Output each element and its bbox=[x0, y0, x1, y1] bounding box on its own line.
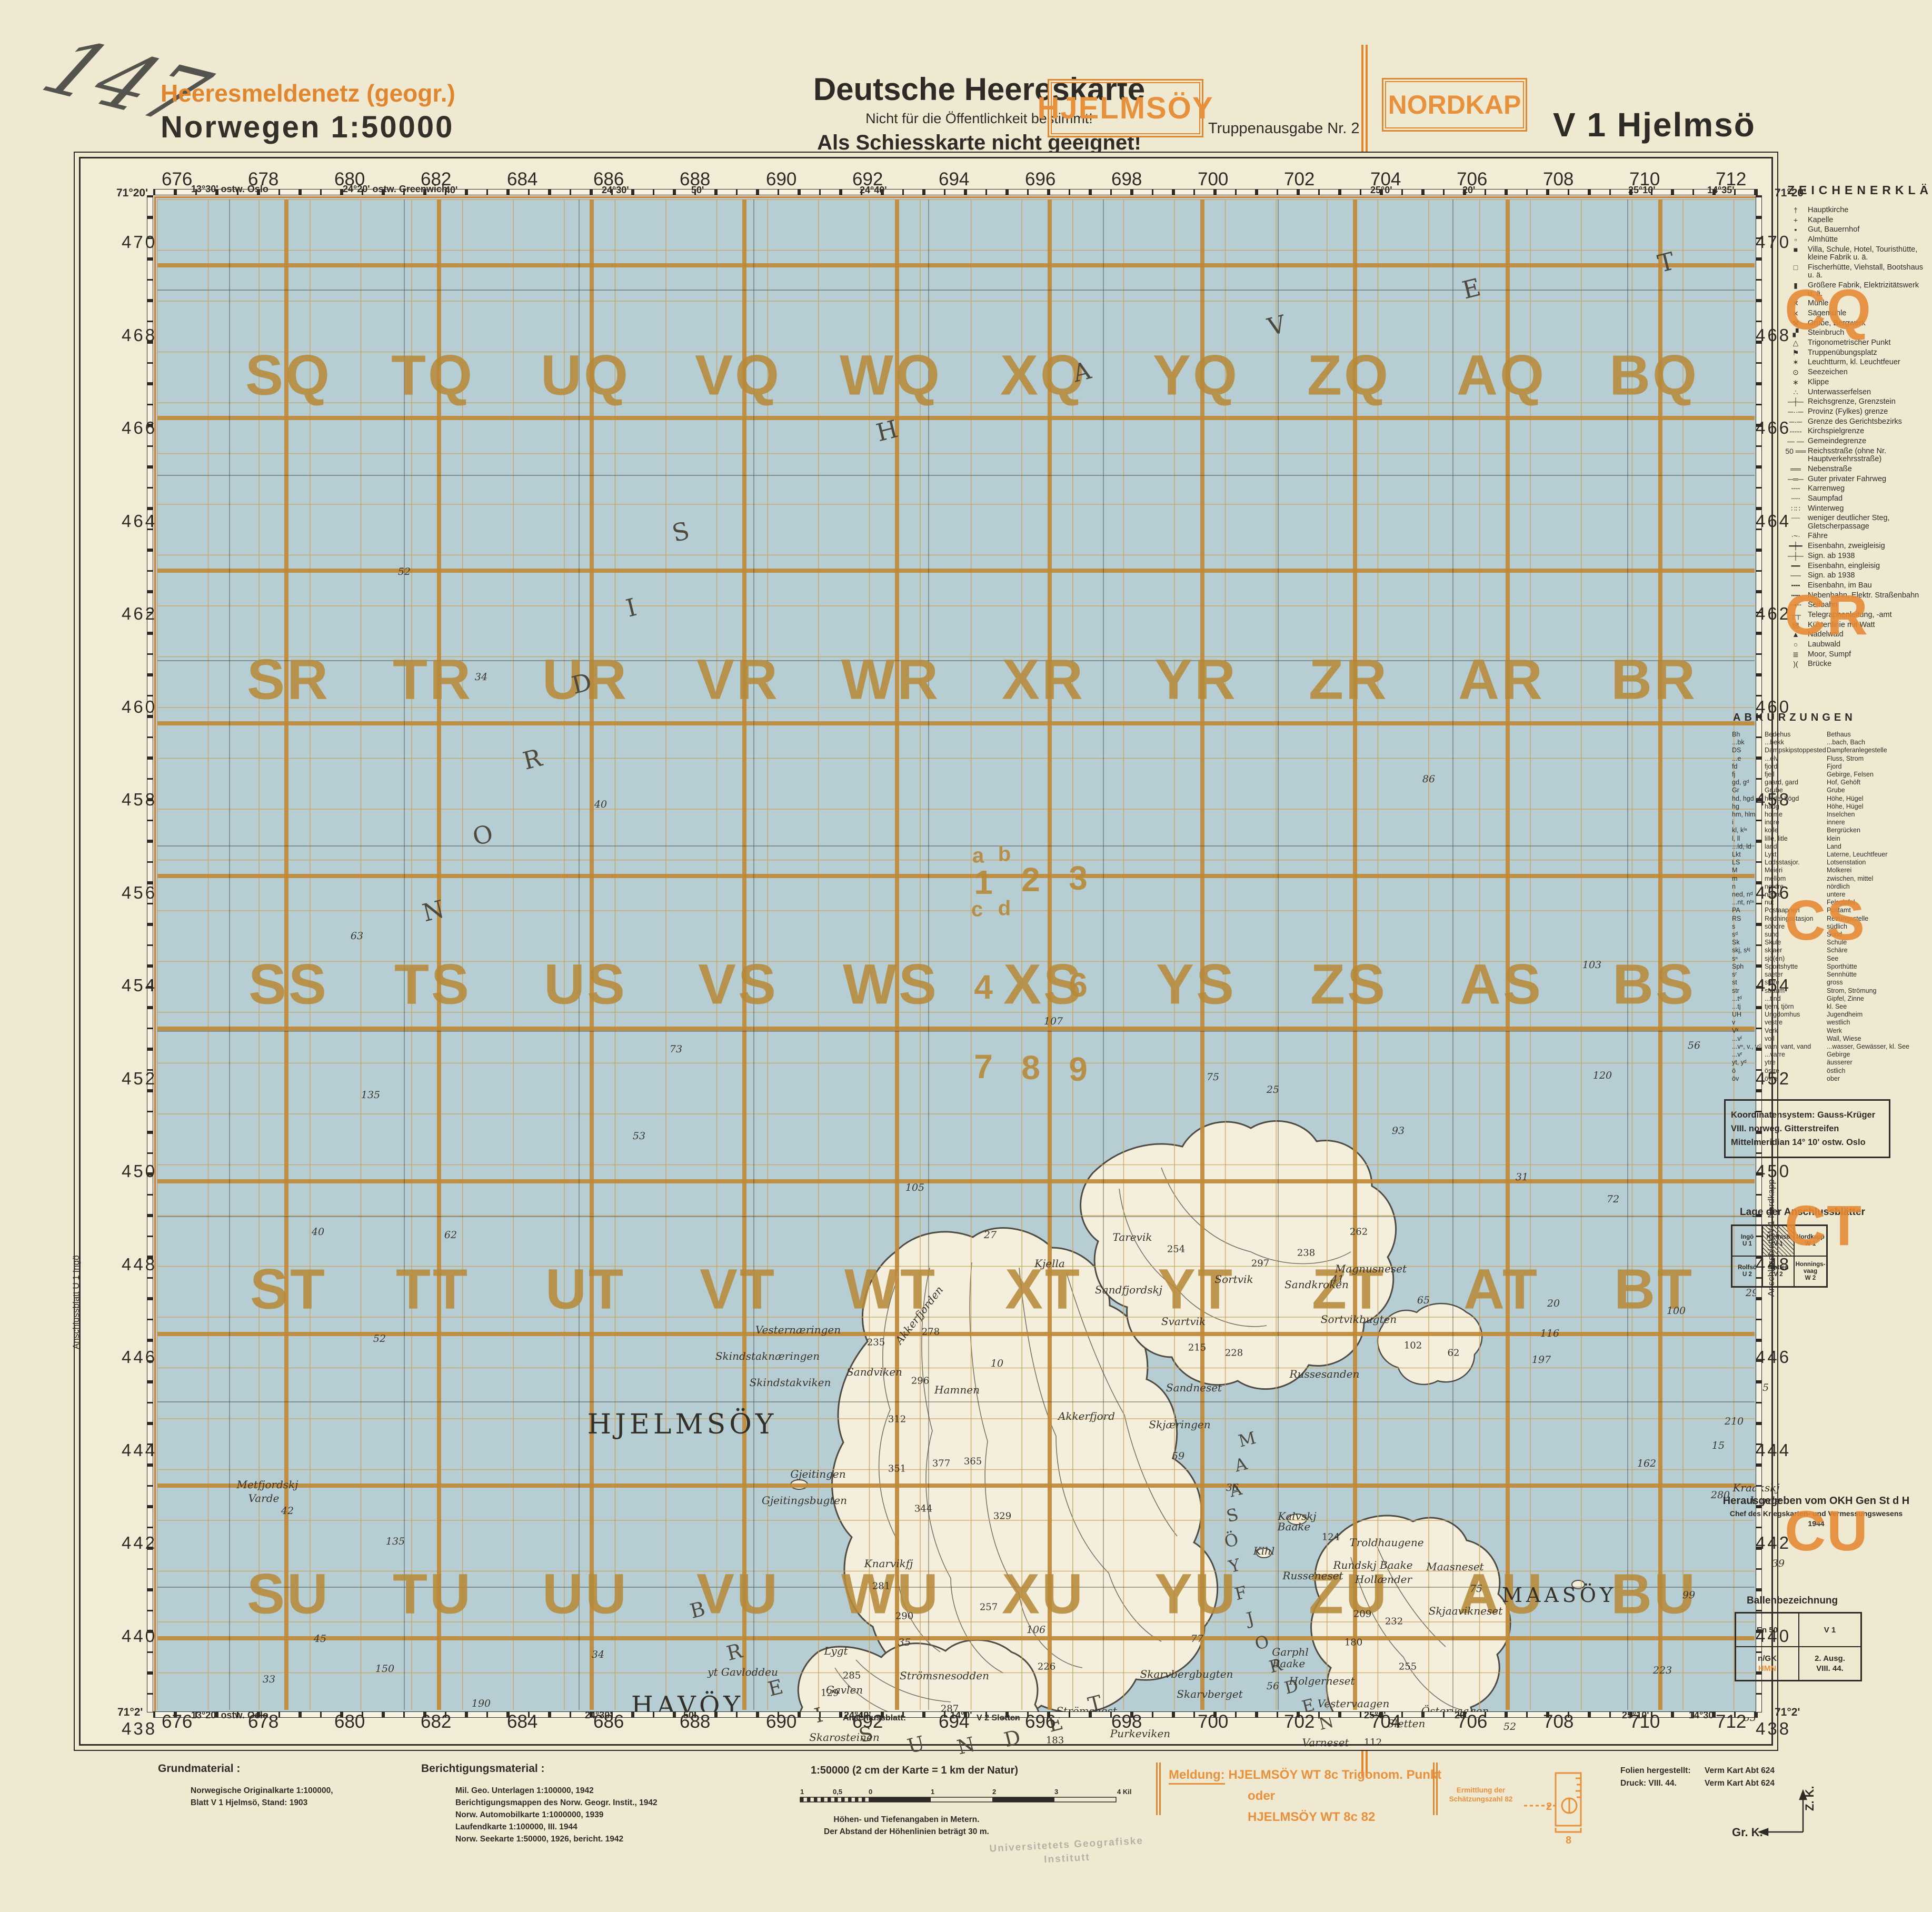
abbreviation-row: hm, hlmholmeInselchen bbox=[1732, 811, 1927, 819]
margin-edge-num: 680 bbox=[334, 1711, 365, 1732]
svg-text:0: 0 bbox=[869, 1788, 872, 1796]
margin-edge-num: 708 bbox=[1543, 169, 1574, 190]
adjoining-sheet-cell: Honnings- vaagW 2 bbox=[1794, 1256, 1827, 1287]
koord-line: Mittelmeridian 14° 10' ostw. Oslo bbox=[1731, 1136, 1884, 1149]
margin-edge-num: 684 bbox=[507, 169, 537, 190]
abbreviation-row: gd, gᵈgaard, gardHof, Gehöft bbox=[1732, 779, 1927, 786]
abbreviation-row: fdfjordFjord bbox=[1732, 763, 1927, 771]
header-left: Heeresmeldenetz (geogr.) Norwegen 1:5000… bbox=[161, 79, 455, 145]
pname-label: Skarosteinen bbox=[809, 1731, 879, 1744]
legend-item: -----Kirchspielgrenze bbox=[1784, 427, 1926, 436]
margin-zone-letter: CS bbox=[1785, 887, 1866, 953]
margin-zone-letter: CQ bbox=[1785, 276, 1872, 342]
correction-material-title: Berichtigungsmaterial : bbox=[421, 1762, 545, 1775]
legend-item: ≣Moor, Sumpf bbox=[1784, 651, 1926, 659]
legend-label: Provinz (Fylkes) grenze bbox=[1808, 408, 1888, 416]
legend-item: 50 ══Reichsstraße (ohne Nr. Hauptverkehr… bbox=[1784, 447, 1926, 464]
legend-item: ╌╌Karrenweg bbox=[1784, 485, 1926, 493]
legend-symbol-icon: ⊙ bbox=[1784, 369, 1808, 376]
legend-item: ┄┄Saumpfad bbox=[1784, 495, 1926, 503]
legend-label: Guter privater Fahrweg bbox=[1808, 475, 1886, 484]
abbreviation-row: vvestrewestlich bbox=[1732, 1019, 1927, 1027]
abbreviation-row: LSLodsstasjor.Lotsenstation bbox=[1732, 859, 1927, 867]
bale-cell: V 1 bbox=[1799, 1613, 1861, 1647]
diagram-bottom-num: 8 bbox=[1566, 1835, 1571, 1846]
legend-symbol-icon: ✶ bbox=[1784, 358, 1808, 366]
abbreviation-row: yt, yᵈytreäusserer bbox=[1732, 1059, 1927, 1067]
margin-rotl: Anschlussblatt U 1 Ingö bbox=[71, 1255, 82, 1349]
map-canvas[interactable]: SQTQUQVQWQXQYQZQAQBQSRTRURVRWRXRYRZRARBR… bbox=[154, 196, 1758, 1713]
margin-edge-num-l: 462 bbox=[122, 604, 157, 624]
abbreviation-row: övövreober bbox=[1732, 1075, 1927, 1083]
margin-edge-num-l: 452 bbox=[122, 1069, 157, 1089]
bale-cell: 2. Ausg.VIII. 44. bbox=[1799, 1647, 1861, 1680]
margin-edge-num-l: 446 bbox=[122, 1347, 157, 1367]
margin-latlab: 71°2' bbox=[117, 1706, 143, 1719]
pname-label: Varneset bbox=[1302, 1736, 1349, 1749]
grid-north-diagram: Gr. K. Z. K. bbox=[1727, 1779, 1843, 1874]
abbreviation-row: UHUngdomhusJugendheim bbox=[1732, 1011, 1927, 1019]
margin-edge-num-l: 438 bbox=[1756, 1719, 1791, 1739]
library-stamp: Universitetets Geografiske Institutt bbox=[989, 1834, 1144, 1869]
margin-edge-num: 696 bbox=[1025, 1711, 1055, 1732]
abbreviation-row: LktLyktLaterne, Leuchtfeuer bbox=[1732, 851, 1927, 859]
legend-item: ■Villa, Schule, Hotel, Touristhütte, kle… bbox=[1784, 246, 1926, 262]
estimation-diagram: 2 8 bbox=[1519, 1769, 1592, 1848]
meldung-bar-left bbox=[1156, 1762, 1161, 1815]
estimation-line: Schätzungszahl 82 bbox=[1447, 1795, 1515, 1804]
margin-lonlab: V 2 Slotten bbox=[977, 1714, 1020, 1723]
abbreviation-row: sⁿsjö(en)See bbox=[1732, 955, 1927, 963]
margin-edge-num-l: 448 bbox=[122, 1254, 157, 1274]
legend-item: )(Brücke bbox=[1784, 660, 1926, 669]
legend-item: ⚑Truppenübungsplatz bbox=[1784, 349, 1926, 357]
margin-edge-num: 700 bbox=[1198, 169, 1228, 190]
margin-lonlab: 24°30' bbox=[585, 1710, 612, 1721]
legend-item: ·~·Fähre bbox=[1784, 532, 1926, 541]
abbreviation-row: sʳsaeterSennhütte bbox=[1732, 971, 1927, 979]
margin-lonlab: 14°30' bbox=[1689, 1710, 1716, 1721]
legend-item: ━━Eisenbahn, eingleisig bbox=[1784, 562, 1926, 571]
stamp-hjelmsoy: HJELMSÖY bbox=[1048, 79, 1203, 137]
abbreviation-row: ...ld, ldlandLand bbox=[1732, 843, 1927, 851]
edition-label: Truppenausgabe Nr. 2 bbox=[1208, 120, 1360, 137]
margin-edge-num: 702 bbox=[1284, 169, 1314, 190]
margin-lonlab: 25°0' bbox=[1370, 185, 1392, 196]
heights-note: Höhen- und Tiefenangaben in Metern. Der … bbox=[824, 1814, 989, 1838]
adjoining-sheet-cell: SlottenV 2 bbox=[1762, 1256, 1794, 1287]
legend-symbol-icon: ─·─ bbox=[1784, 418, 1808, 426]
legend-item: ✶Leuchtturm, kl. Leuchtfeuer bbox=[1784, 358, 1926, 367]
hgt-label: 183 bbox=[1046, 1735, 1064, 1746]
meldung-line1: HJELMSÖY WT 8c Trigonom. Punkt bbox=[1228, 1768, 1441, 1782]
sheet-name: V 1 Hjelmsö bbox=[1553, 105, 1756, 144]
abbreviation-row: ...vˡvollWall, Wiese bbox=[1732, 1035, 1927, 1043]
legend-label: Villa, Schule, Hotel, Touristhütte, klei… bbox=[1808, 246, 1926, 262]
margin-edge-num: 690 bbox=[766, 169, 796, 190]
margin-edge-num: 690 bbox=[766, 1711, 796, 1732]
legend-label: Gemeindegrenze bbox=[1808, 437, 1866, 446]
estimation-note: Ermittlung der Schätzungszahl 82 bbox=[1447, 1786, 1515, 1804]
margin-edge-num-l: 442 bbox=[122, 1533, 157, 1553]
heights-line: Höhen- und Tiefenangaben in Metern. bbox=[824, 1814, 989, 1826]
abbreviation-row: ...bk...bekk...bach, Bach bbox=[1732, 739, 1927, 746]
legend-item: †Hauptkirche bbox=[1784, 206, 1926, 215]
margin-edge-num-l: 444 bbox=[122, 1440, 157, 1460]
legend-label: Klippe bbox=[1808, 379, 1829, 387]
legend-item: ∗Klippe bbox=[1784, 379, 1926, 387]
margin-lonlab: 20' bbox=[1455, 1710, 1467, 1721]
legend-label: Saumpfad bbox=[1808, 495, 1843, 503]
legend-symbol-icon: ▪ bbox=[1784, 226, 1808, 234]
margin-edge-num: 702 bbox=[1284, 1711, 1314, 1732]
abbreviation-row: hd, hgdhöide, högdHöhe, Hügel bbox=[1732, 795, 1927, 803]
abbreviation-row: DSDampskipstoppestedDampferanlegestelle bbox=[1732, 746, 1927, 754]
abbreviation-row: ...e...elvFluss, Strom bbox=[1732, 755, 1927, 763]
legend-symbol-icon: ╌╌ bbox=[1784, 485, 1808, 493]
margin-edge-num-l: 470 bbox=[122, 232, 157, 252]
coordinate-system-box: Koordinatensystem: Gauss-Krüger VIII. no… bbox=[1724, 1099, 1890, 1158]
bale-cell: En 50 bbox=[1736, 1613, 1799, 1647]
legend-item: ─·─Grenze des Gerichtsbezirks bbox=[1784, 418, 1926, 426]
legend-item: ▫Almhütte bbox=[1784, 236, 1926, 244]
legend-symbol-icon: ══ bbox=[1784, 465, 1808, 473]
legend-label: Kirchspielgrenze bbox=[1808, 427, 1864, 436]
legend-symbol-icon: ┈┈ bbox=[1784, 514, 1808, 522]
margin-edge-num-l: 440 bbox=[122, 1626, 157, 1646]
margin-edge-num-l: 464 bbox=[122, 511, 157, 531]
abbreviation-row: GrGrubeGrube bbox=[1732, 786, 1927, 794]
legend-item: ──Sign. ab 1938 bbox=[1784, 572, 1926, 580]
legend-item: ─┼─Reichsgrenze, Grenzstein bbox=[1784, 398, 1926, 406]
svg-text:2: 2 bbox=[992, 1788, 996, 1796]
legend-symbol-icon: ∴ bbox=[1784, 389, 1808, 396]
adjoining-sheet-cell: IngöU 1 bbox=[1732, 1226, 1762, 1256]
legend-item: ┈┈weniger deutlicher Steg, Gletscherpass… bbox=[1784, 514, 1926, 531]
legend-label: Gut, Bauernhof bbox=[1808, 226, 1859, 234]
koord-line: VIII. norweg. Gitterstreifen bbox=[1731, 1122, 1884, 1136]
legend-symbol-icon: ·~· bbox=[1784, 532, 1808, 540]
legend-item: ▪Gut, Bauernhof bbox=[1784, 226, 1926, 234]
legend-label: Truppenübungsplatz bbox=[1808, 349, 1877, 357]
legend-symbol-icon: ≣ bbox=[1784, 651, 1808, 659]
koord-line: Koordinatensystem: Gauss-Krüger bbox=[1731, 1108, 1884, 1122]
abbreviation-row: ...tᵈ...tindGipfel, Zinne bbox=[1732, 995, 1927, 1003]
margin-lonlab: 25°10' bbox=[1622, 1710, 1649, 1721]
legend-item: ─┼─Sign. ab 1938 bbox=[1784, 552, 1926, 561]
margin-lonlab: 40' bbox=[445, 185, 457, 196]
legend-label: Nebenstraße bbox=[1808, 465, 1852, 474]
abbreviation-row: ...tjtjern, tjörnkl. See bbox=[1732, 1003, 1927, 1011]
abbreviation-row: ...vʳ...varreGebirge bbox=[1732, 1051, 1927, 1059]
legend-symbol-icon: 50 ══ bbox=[1784, 447, 1808, 455]
map-frame: SQTQUQVQWQXQYQZQAQBQSRTRURVRWRXRYRZRARBR… bbox=[79, 157, 1773, 1746]
svg-text:1: 1 bbox=[931, 1788, 934, 1796]
scale-statement: 1:50000 (2 cm der Karte = 1 km der Natur… bbox=[811, 1765, 1018, 1777]
margin-lonlab: 20' bbox=[1462, 185, 1475, 196]
abbreviation-row: MMeieriMolkerei bbox=[1732, 867, 1927, 874]
legend-symbol-icon: ─═─ bbox=[1784, 475, 1808, 483]
island-ne-small bbox=[1378, 1303, 1482, 1385]
abbreviation-row: ööstreöstlich bbox=[1732, 1067, 1927, 1075]
base-material-title: Grundmaterial : bbox=[158, 1762, 240, 1775]
abbreviation-row: VᵏVerkWerk bbox=[1732, 1027, 1927, 1035]
map-sheet: { "page": { "handwritten_number": "147" … bbox=[0, 0, 1932, 1871]
seachar seachar2-label: N bbox=[955, 1732, 979, 1759]
legend-symbol-icon: † bbox=[1784, 206, 1808, 214]
margin-lonlab: Anschlussblatt: bbox=[843, 1714, 906, 1723]
legend-item: ━┿━Eisenbahn, zweigleisig bbox=[1784, 542, 1926, 551]
abbreviation-row: kl, kˡⁿkolleBergrücken bbox=[1732, 826, 1927, 834]
abbreviation-row: ststoregross bbox=[1732, 979, 1927, 987]
meldung-label: Meldung: bbox=[1169, 1768, 1225, 1785]
margin-lonlab: 24°20' ostw. Greenwich bbox=[343, 184, 447, 195]
margin-lonlab: 13°20' ostw. Oslo bbox=[191, 1710, 268, 1721]
abbreviation-row: SphSportshytteSporthütte bbox=[1732, 963, 1927, 971]
abbreviation-row: strstraumStrom, Strömung bbox=[1732, 987, 1927, 995]
stamp-nordkap: NORDKAP bbox=[1382, 78, 1527, 132]
abbreviation-row: mmellomzwischen, mittel bbox=[1732, 875, 1927, 883]
legend-label: Winterweg bbox=[1808, 505, 1844, 513]
margin-zone-letter: CU bbox=[1785, 1498, 1869, 1564]
legend-symbol-icon: ─┼─ bbox=[1784, 398, 1808, 406]
seachar seachar2-label: D bbox=[1002, 1725, 1024, 1752]
margin-lonlab: 25°10' bbox=[1628, 185, 1656, 196]
legend-item: ─··─Provinz (Fylkes) grenze bbox=[1784, 408, 1926, 416]
legend-symbol-icon: ── bbox=[1784, 572, 1808, 580]
margin-edge-num: 676 bbox=[162, 169, 192, 190]
abbreviation-row: hghaugHöhe, Hügel bbox=[1732, 803, 1927, 811]
legend-label: Kapelle bbox=[1808, 216, 1833, 225]
margin-edge-num-l: 466 bbox=[122, 418, 157, 438]
margin-edge-num: 682 bbox=[421, 1711, 451, 1732]
abbreviation-row: ...vⁿ, v., vᵈvatn, vant, vand...wasser, … bbox=[1732, 1043, 1927, 1051]
legend-symbol-icon: □ bbox=[1784, 264, 1808, 272]
margin-edge-num: 698 bbox=[1111, 1711, 1142, 1732]
abbreviation-row: BhBedehusBethaus bbox=[1732, 731, 1927, 739]
legend-symbol-icon: ─┼─ bbox=[1784, 552, 1808, 560]
legend-item: ∷∷Winterweg bbox=[1784, 505, 1926, 513]
legend-label: Karrenweg bbox=[1808, 485, 1845, 493]
zk-label: Z. K. bbox=[1803, 1786, 1816, 1811]
legend-label: Reichsgrenze, Grenzstein bbox=[1808, 398, 1896, 406]
margin-edge-num-l: 450 bbox=[122, 1161, 157, 1181]
legend-label: Almhütte bbox=[1808, 236, 1838, 244]
legend-item: +Kapelle bbox=[1784, 216, 1926, 225]
margin-edge-num: 708 bbox=[1543, 1711, 1574, 1732]
margin-lonlab: 24°30' bbox=[602, 185, 629, 196]
legend-label: Grenze des Gerichtsbezirks bbox=[1808, 418, 1902, 426]
legend-symbol-icon: ■ bbox=[1784, 246, 1808, 254]
legend-label: Unterwasserfelsen bbox=[1808, 389, 1871, 397]
legend-symbol-icon: ━┿━ bbox=[1784, 542, 1808, 550]
legend-label: weniger deutlicher Steg, Gletscherpassag… bbox=[1808, 514, 1926, 531]
legend-label: Brücke bbox=[1808, 660, 1831, 669]
margin-edge-num-l: 438 bbox=[122, 1719, 157, 1739]
legend-title: ZEICHENERKLÄRUNG bbox=[1787, 183, 1932, 197]
abbreviation-row: iindreinnere bbox=[1732, 819, 1927, 826]
meldung-line3: HJELMSÖY WT 8c 82 bbox=[1169, 1807, 1441, 1828]
scale-bar: 10,501234 Kilometer bbox=[795, 1786, 1132, 1808]
bale-designation-title: Ballenbezeichnung bbox=[1747, 1595, 1838, 1607]
abbreviations-title: ABKÜRZUNGEN bbox=[1733, 712, 1856, 724]
legend-label: Sign. ab 1938 bbox=[1808, 572, 1855, 580]
series-title: Heeresmeldenetz (geogr.) bbox=[161, 79, 455, 107]
grk-label: Gr. K. bbox=[1732, 1826, 1763, 1839]
margin-zone-letter: CR bbox=[1785, 582, 1869, 648]
legend-label: Fähre bbox=[1808, 532, 1828, 541]
margin-edge-num-l: 458 bbox=[122, 790, 157, 810]
margin-lonlab: 24°40' bbox=[860, 185, 887, 196]
diagram-left-num: 2 bbox=[1546, 1801, 1552, 1813]
estimation-line: Ermittlung der bbox=[1447, 1786, 1515, 1795]
legend-label: Eisenbahn, zweigleisig bbox=[1808, 542, 1885, 551]
margin-zone-letter: CT bbox=[1785, 1192, 1863, 1258]
legend-symbol-icon: )( bbox=[1784, 660, 1808, 668]
legend-symbol-icon: + bbox=[1784, 216, 1808, 224]
margin-edge-num: 696 bbox=[1025, 169, 1055, 190]
margin-lonlab: 50' bbox=[683, 1710, 696, 1721]
margin-lonlab: 14°0' bbox=[950, 1710, 972, 1721]
depth-label: 52 bbox=[1503, 1721, 1516, 1732]
legend-symbol-icon: ━━ bbox=[1784, 562, 1808, 570]
legend-item: ══Nebenstraße bbox=[1784, 465, 1926, 474]
legend-symbol-icon: ─··─ bbox=[1784, 408, 1808, 416]
margin-lonlab: 25°0' bbox=[1364, 1710, 1386, 1721]
meldung-line2: oder bbox=[1169, 1786, 1441, 1807]
legend-label: Leuchtturm, kl. Leuchtfeuer bbox=[1808, 358, 1900, 367]
abbreviation-row: fjfjellGebirge, Felsen bbox=[1732, 771, 1927, 779]
margin-edge-num: 700 bbox=[1198, 1711, 1228, 1732]
country-scale: Norwegen 1:50000 bbox=[161, 109, 455, 145]
legend-item: ─═─Guter privater Fahrweg bbox=[1784, 475, 1926, 484]
margin-lonlab: 13°30' ostw. Oslo bbox=[191, 184, 268, 195]
legend-symbol-icon: ∗ bbox=[1784, 379, 1808, 386]
margin-edge-num-l: 468 bbox=[122, 325, 157, 345]
margin-edge-num: 694 bbox=[939, 169, 969, 190]
svg-text:0,5: 0,5 bbox=[833, 1788, 842, 1796]
legend-item: — —Gemeindegrenze bbox=[1784, 437, 1926, 446]
margin-edge-num: 684 bbox=[507, 1711, 537, 1732]
adjoining-sheet-cell: RolfsöU 2 bbox=[1732, 1256, 1762, 1287]
legend-label: Eisenbahn, eingleisig bbox=[1808, 562, 1880, 571]
margin-latlab: 71°2' bbox=[1775, 1706, 1800, 1719]
margin-edge-num-l: 454 bbox=[122, 975, 157, 995]
legend-symbol-icon: ----- bbox=[1784, 427, 1808, 435]
correction-material-lines: Mil. Geo. Unterlagen 1:100000, 1942Beric… bbox=[455, 1785, 658, 1845]
legend-symbol-icon: ⚑ bbox=[1784, 349, 1808, 357]
margin-edge-num: 676 bbox=[162, 1711, 192, 1732]
legend-symbol-icon: ▫ bbox=[1784, 236, 1808, 244]
legend-label: Hauptkirche bbox=[1808, 206, 1848, 215]
bale-designation-table: En 50V 1n/GKHMN2. Ausg.VIII. 44. bbox=[1735, 1612, 1862, 1681]
svg-text:1: 1 bbox=[800, 1788, 804, 1796]
abbreviation-row: l, lllille, litleklein bbox=[1732, 835, 1927, 843]
legend-item: ∴Unterwasserfelsen bbox=[1784, 389, 1926, 397]
base-material-lines: Norwegische Originalkarte 1:100000,Blatt… bbox=[191, 1785, 333, 1809]
legend-symbol-icon: ┄┄ bbox=[1784, 495, 1808, 503]
margin-edge-num: 698 bbox=[1111, 169, 1142, 190]
margin-edge-num-l: 456 bbox=[122, 883, 157, 903]
meldung-block: Meldung: HJELMSÖY WT 8c Trigonom. Punkt … bbox=[1169, 1765, 1441, 1828]
legend-label: Seezeichen bbox=[1808, 369, 1848, 377]
legend-item: ⊙Seezeichen bbox=[1784, 369, 1926, 377]
svg-text:4 Kilometer: 4 Kilometer bbox=[1117, 1788, 1132, 1796]
legend-label: Sign. ab 1938 bbox=[1808, 552, 1855, 561]
legend-label: Moor, Sumpf bbox=[1808, 651, 1851, 659]
bale-cell: n/GKHMN bbox=[1736, 1647, 1799, 1680]
seachar seachar2-label: U bbox=[905, 1731, 928, 1758]
sidebar: ZEICHENERKLÄRUNG †Hauptkirche+Kapelle▪Gu… bbox=[1721, 174, 1929, 1700]
margin-edge-num-l: 460 bbox=[122, 697, 157, 717]
legend-symbol-icon: — — bbox=[1784, 437, 1808, 445]
margin-lonlab: 50' bbox=[691, 185, 704, 196]
legend-symbol-icon: ∷∷ bbox=[1784, 505, 1808, 513]
island-havoy bbox=[798, 1640, 1040, 1711]
legend-label: Reichsstraße (ohne Nr. Hauptverkehrsstra… bbox=[1808, 447, 1926, 464]
island-maasoy bbox=[1311, 1516, 1510, 1711]
svg-text:3: 3 bbox=[1054, 1788, 1058, 1796]
margin-latlab: 71°20' bbox=[116, 187, 148, 200]
margin-edge-num: 712 bbox=[1716, 1711, 1746, 1732]
heights-line: Der Abstand der Höhenlinien beträgt 30 m… bbox=[824, 1826, 989, 1838]
